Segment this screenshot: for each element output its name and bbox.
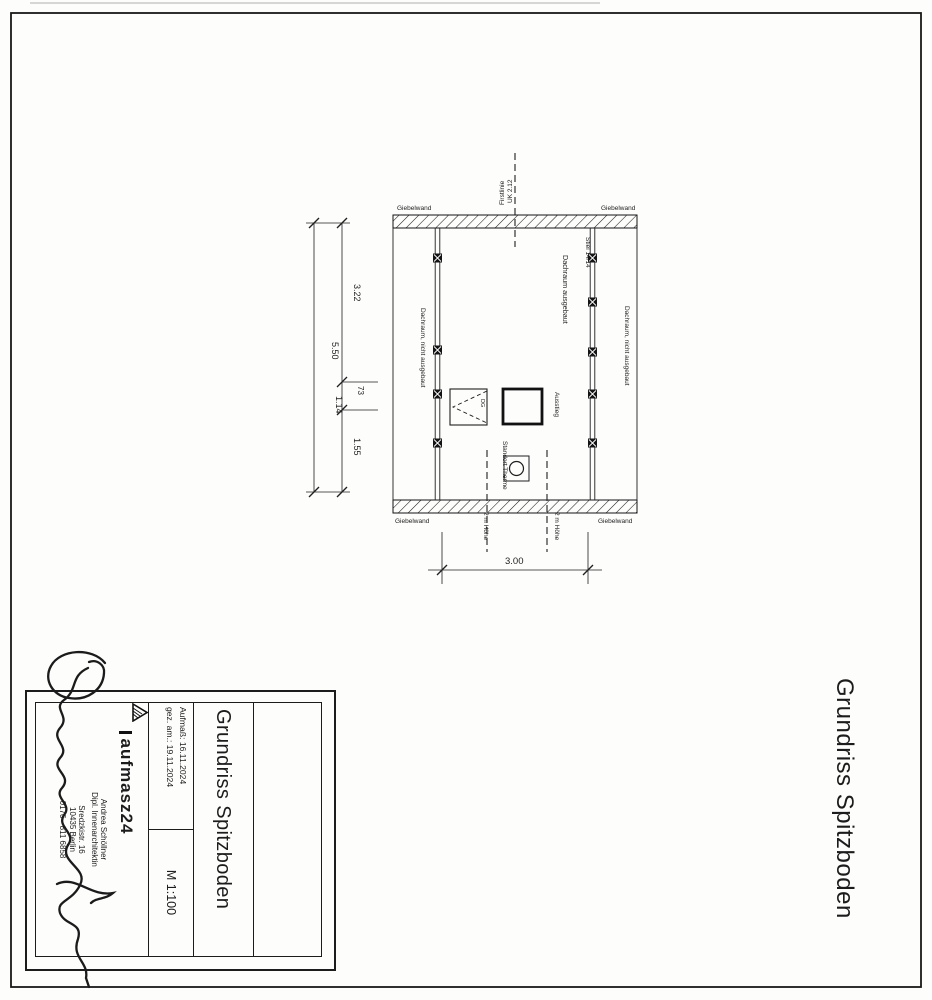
dim-3-00: 3.00	[505, 556, 524, 567]
scanned-drawing-sheet: DG	[0, 0, 932, 1000]
phone-number: 0176 - 811 6858	[58, 703, 67, 956]
stud-wall-right	[590, 228, 595, 500]
company-divider-bar	[120, 731, 133, 734]
label-giebelwand-bottom-left: Giebelwand	[395, 518, 430, 525]
title-block-inner: aufmasz24 Andrea Schöllner Dipl. Innenar…	[35, 702, 322, 957]
address-street: Sredzkistr. 16	[77, 703, 86, 956]
dim-1-55: 1.55	[352, 438, 362, 456]
titleblock-dates-cell: Aufmaß: 16.11.2024 gez. am.: 19.11.2024	[148, 703, 193, 827]
label-giebelwand-top-right: Giebelwand	[601, 205, 636, 212]
person-profession: Dipl. Innenarchitektin	[89, 703, 98, 956]
address-city: 10435 Berlin	[67, 703, 76, 956]
person-name: Andrea Schöllner	[99, 703, 108, 956]
label-hoehe-rechts: 2 m Höhe	[553, 512, 560, 541]
company-triangle-icon	[132, 703, 148, 722]
label-giebelwand-top-left: Giebelwand	[397, 205, 432, 212]
company-address: Andrea Schöllner Dipl. Innenarchitektin …	[58, 703, 108, 956]
drawn-date: gez. am.: 19.11.2024	[162, 707, 175, 827]
label-stiel: Stiel 14/14	[584, 237, 591, 268]
stud-wall-left	[435, 228, 440, 500]
dim-5-50: 5.50	[330, 342, 340, 360]
company-name: aufmasz24	[116, 739, 136, 835]
titleblock-title-cell: Grundriss Spitzboden	[191, 703, 253, 956]
label-dachraum-nicht-links: Dachraum, nicht ausgebaut	[419, 308, 426, 388]
gable-wall-bottom	[393, 500, 637, 513]
dim-3-22: 3.22	[352, 284, 362, 302]
dim-1-14: 1.14	[334, 396, 344, 414]
title-block: aufmasz24 Andrea Schöllner Dipl. Innenar…	[25, 690, 336, 971]
titleblock-scale-cell: M 1:100	[148, 829, 193, 956]
titleblock-logo-cell: aufmasz24 Andrea Schöllner Dipl. Innenar…	[36, 703, 148, 956]
dim-73: 73	[356, 386, 365, 395]
dimension-lines-left	[306, 218, 378, 497]
measure-date: Aufmaß: 16.11.2024	[176, 707, 189, 827]
label-dachraum-ausgebaut: Dachraum ausgebaut	[561, 255, 570, 324]
label-uk-212: UK 2.12	[507, 179, 514, 203]
sheet-side-title: Grundriss Spitzboden	[831, 678, 858, 928]
label-hoehe-links: 2 m Höhe	[482, 512, 489, 541]
posts	[433, 254, 597, 448]
exit-hatch	[503, 389, 542, 424]
label-giebelwand-bottom-right: Giebelwand	[598, 518, 633, 525]
label-firstlinie: Firstlinie	[499, 180, 506, 205]
loft-ladder-opening: DG	[450, 389, 487, 425]
label-standort-therme: Standort Therme	[501, 441, 508, 490]
company-row: aufmasz24	[110, 703, 148, 956]
opening-note: DG	[479, 399, 485, 407]
label-dachraum-nicht-rechts: Dachraum, nicht ausgebaut	[623, 306, 630, 386]
titleblock-empty-cell	[253, 703, 321, 956]
label-ausstieg: Ausstieg	[553, 392, 560, 417]
